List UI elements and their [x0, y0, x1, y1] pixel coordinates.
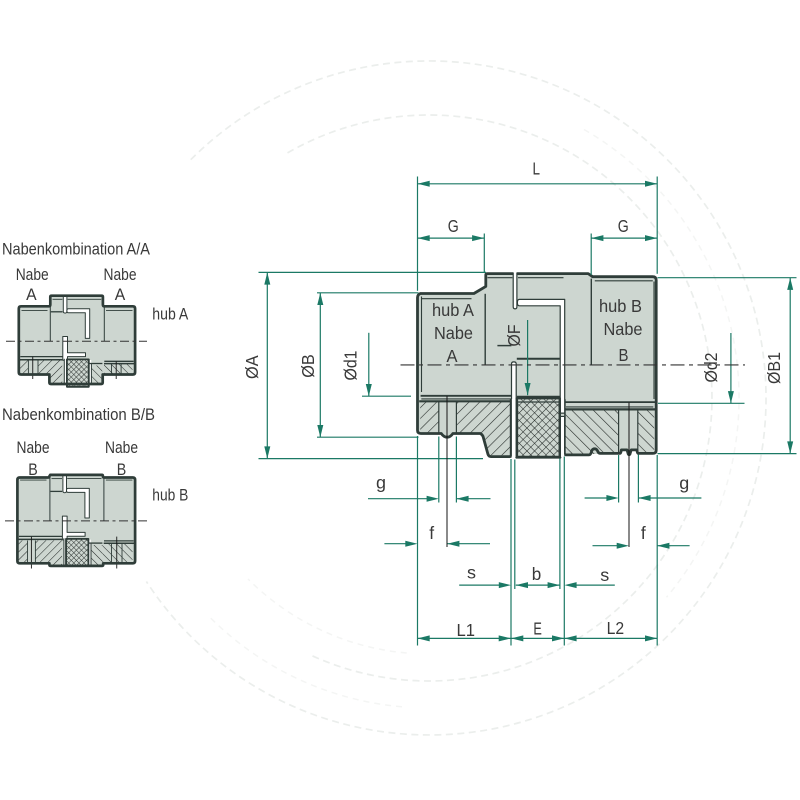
svg-text:hub A: hub A	[432, 300, 474, 320]
svg-text:Nabe: Nabe	[104, 266, 137, 284]
svg-text:g: g	[376, 472, 386, 492]
svg-text:A: A	[26, 286, 37, 304]
svg-text:B: B	[28, 461, 38, 479]
svg-text:s: s	[467, 562, 476, 582]
svg-text:Nabe: Nabe	[16, 266, 49, 284]
svg-text:Ød1: Ød1	[341, 351, 361, 381]
svg-text:hub B: hub B	[152, 485, 188, 504]
svg-text:Nabe: Nabe	[17, 439, 50, 457]
svg-text:ØA: ØA	[242, 355, 262, 379]
svg-text:Nabenkombination A/A: Nabenkombination A/A	[2, 240, 151, 259]
svg-text:g: g	[679, 473, 689, 493]
svg-text:A: A	[115, 286, 126, 304]
svg-text:E: E	[533, 618, 542, 638]
svg-text:Nabe: Nabe	[105, 439, 138, 457]
svg-text:Nabenkombination B/B: Nabenkombination B/B	[2, 405, 155, 424]
svg-text:G: G	[618, 216, 629, 236]
svg-text:s: s	[600, 565, 609, 585]
svg-text:Nabe: Nabe	[434, 323, 473, 343]
svg-text:L: L	[533, 158, 541, 178]
svg-text:f: f	[429, 523, 434, 543]
svg-text:f: f	[641, 523, 646, 543]
svg-text:Nabe: Nabe	[604, 319, 643, 339]
svg-text:B: B	[117, 461, 127, 479]
svg-text:Ød2: Ød2	[701, 353, 721, 383]
svg-text:hub B: hub B	[599, 296, 642, 316]
svg-text:ØF: ØF	[504, 325, 524, 347]
svg-text:b: b	[532, 564, 542, 584]
svg-text:hub A: hub A	[152, 305, 189, 324]
svg-text:L2: L2	[607, 618, 625, 638]
svg-text:G: G	[448, 216, 459, 236]
svg-text:ØB: ØB	[298, 354, 318, 378]
svg-text:B: B	[619, 345, 629, 365]
svg-text:A: A	[447, 346, 458, 366]
svg-text:L1: L1	[457, 620, 476, 640]
svg-text:ØB1: ØB1	[764, 352, 784, 384]
